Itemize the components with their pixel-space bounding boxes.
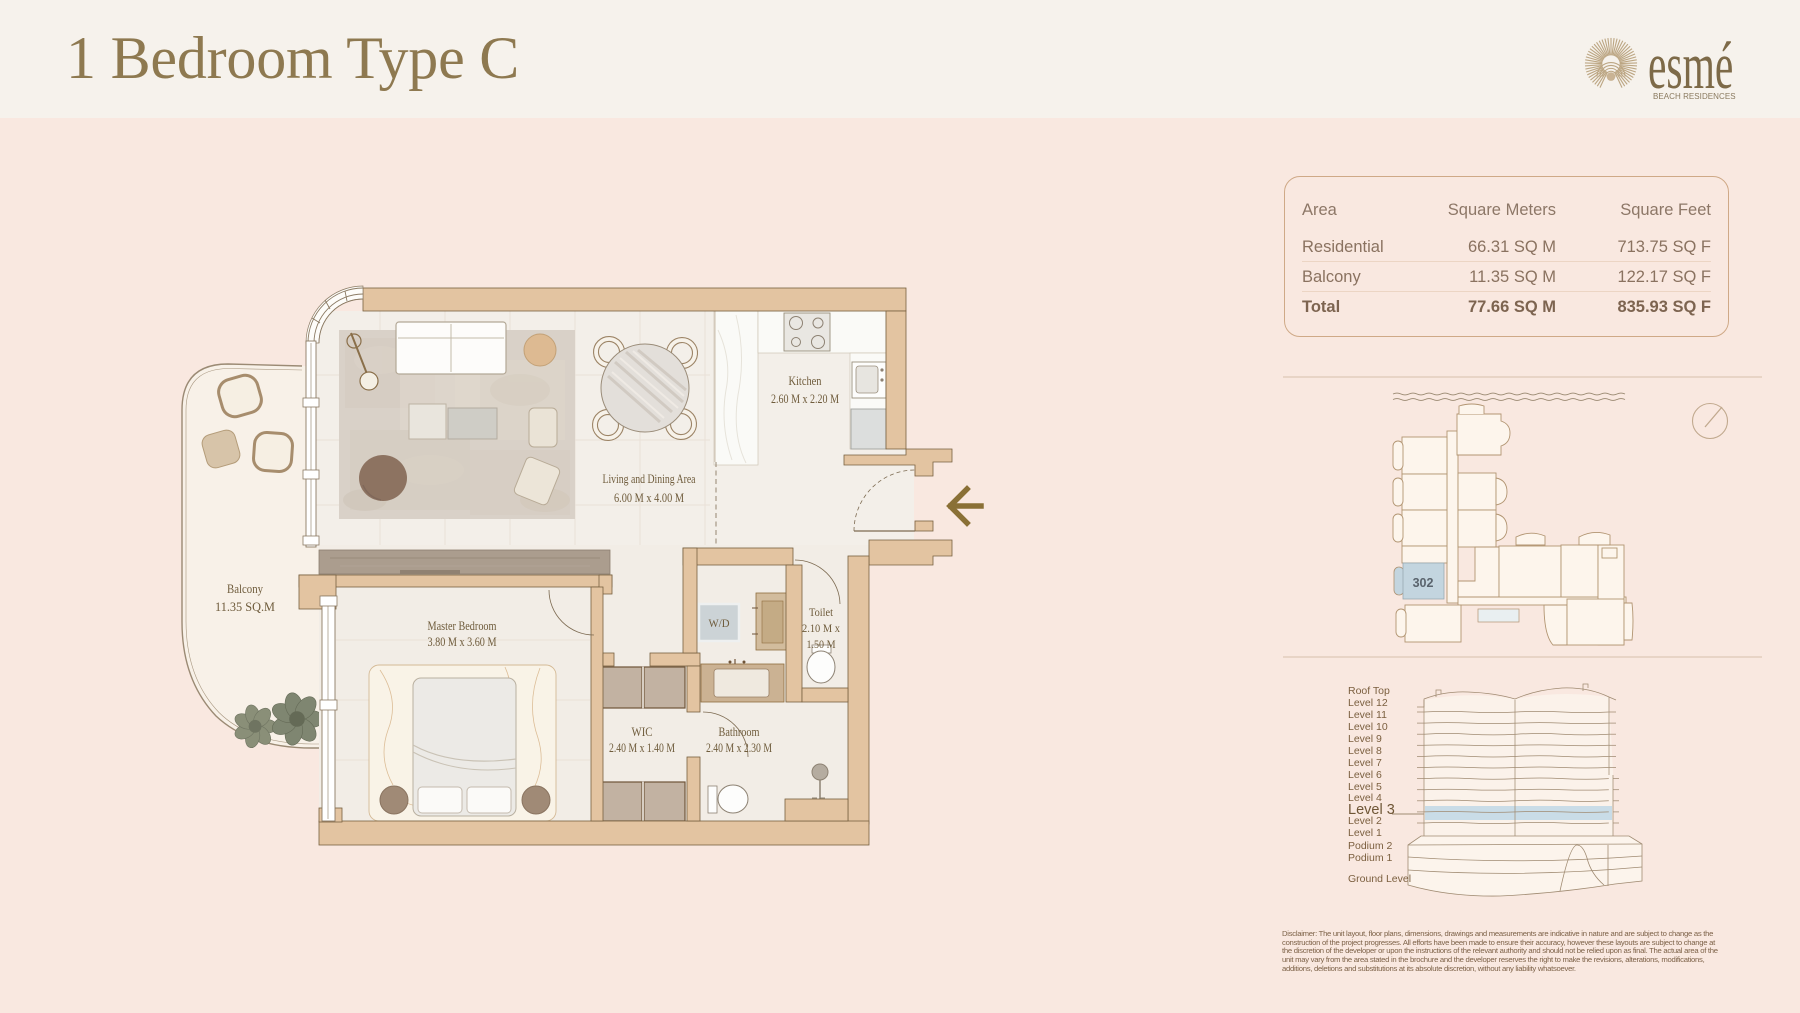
svg-text:WIC: WIC: [632, 725, 653, 739]
svg-text:2.40 M x 2.30 M: 2.40 M x 2.30 M: [706, 741, 772, 755]
svg-text:Toilet: Toilet: [809, 605, 834, 619]
svg-text:302: 302: [1413, 576, 1434, 590]
svg-text:Bathroom: Bathroom: [719, 725, 760, 739]
svg-text:Kitchen: Kitchen: [789, 374, 823, 388]
svg-text:3.80 M x 3.60 M: 3.80 M x 3.60 M: [428, 634, 497, 649]
svg-text:1.50 M: 1.50 M: [807, 637, 836, 651]
svg-text:2.60 M x 2.20 M: 2.60 M x 2.20 M: [771, 392, 839, 406]
svg-text:2.40 M x 1.40 M: 2.40 M x 1.40 M: [609, 741, 675, 755]
svg-text:Balcony: Balcony: [227, 582, 264, 596]
svg-text:11.35 SQ.M: 11.35 SQ.M: [215, 600, 275, 614]
svg-text:2.10 M x: 2.10 M x: [802, 621, 840, 635]
svg-text:Master Bedroom: Master Bedroom: [428, 618, 497, 633]
svg-text:W/D: W/D: [709, 618, 730, 630]
svg-text:Living and Dining Area: Living and Dining Area: [603, 471, 696, 486]
svg-text:6.00 M x 4.00 M: 6.00 M x 4.00 M: [614, 490, 684, 505]
